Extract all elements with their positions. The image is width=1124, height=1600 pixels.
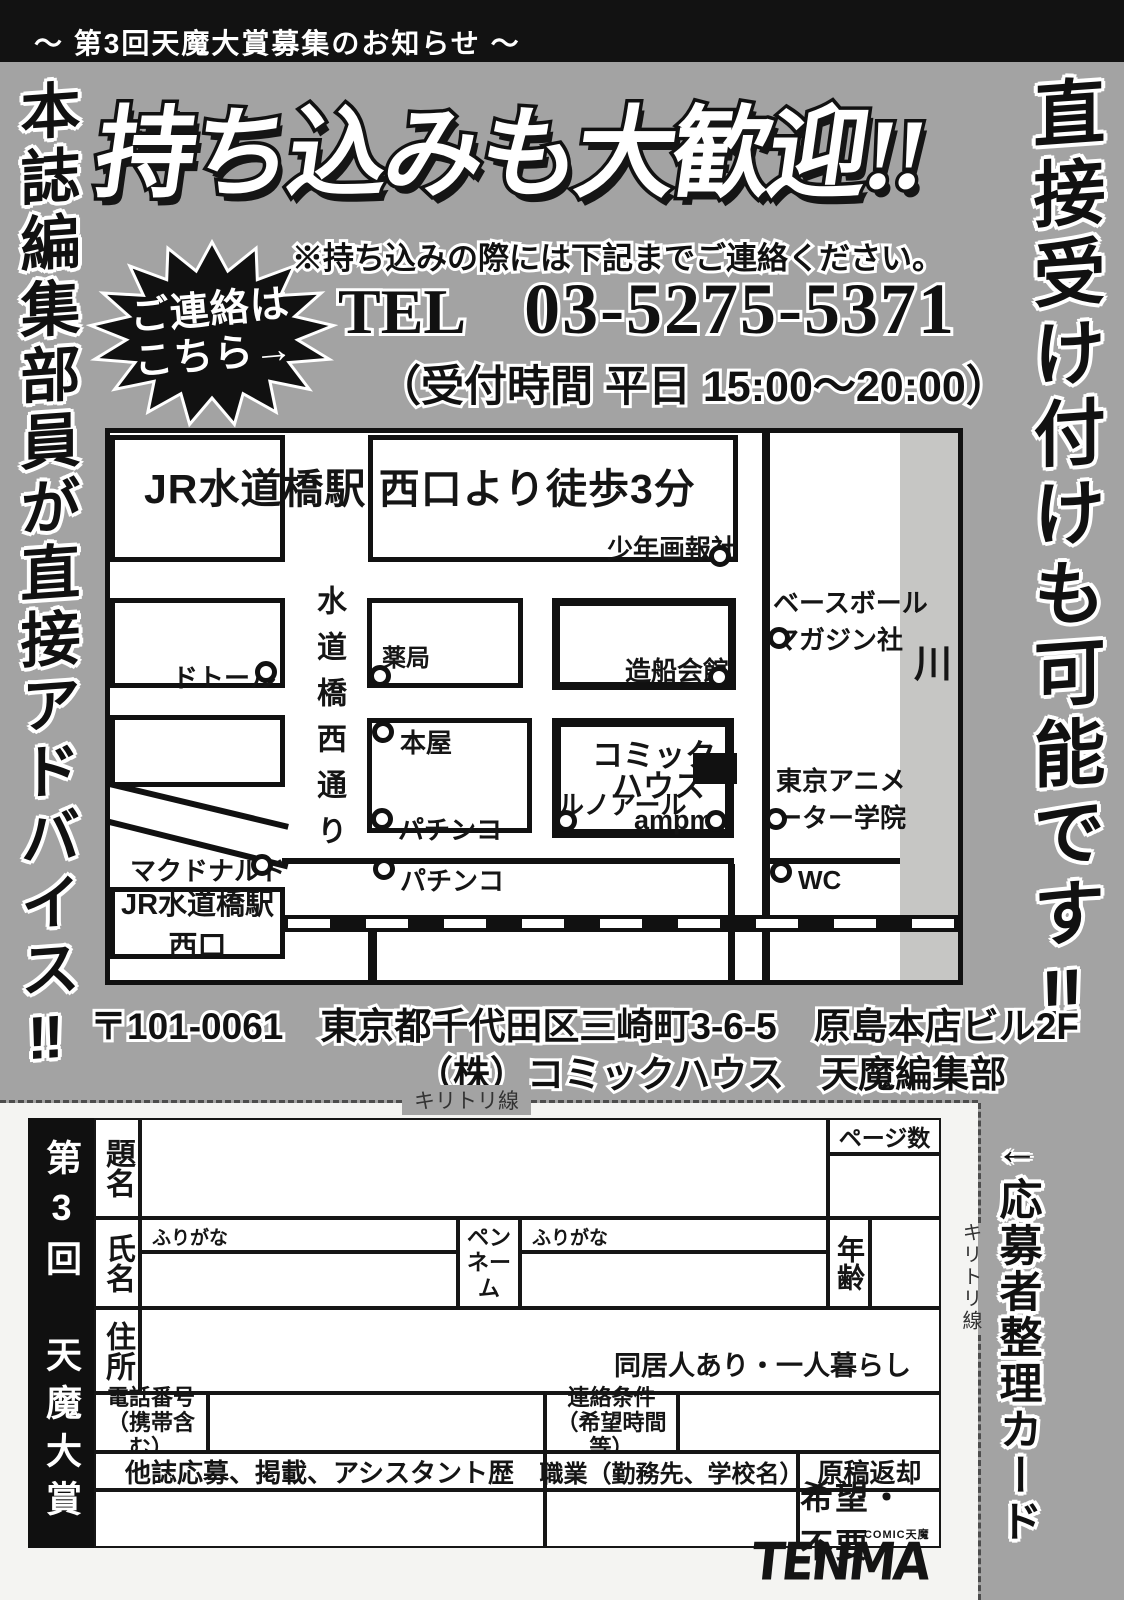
field-input-contact: [678, 1393, 941, 1452]
landmark-yakkyoku: 薬局: [382, 638, 430, 673]
tel-label: TEL: [338, 275, 466, 349]
field-label-address: 住所: [94, 1308, 140, 1393]
map-block-station: JR水道橋駅 西口: [110, 887, 285, 959]
landmark-marker: [255, 661, 277, 683]
field-label-title: 題名: [94, 1118, 140, 1218]
landmark-pachinko2: パチンコ: [400, 861, 504, 898]
railway-track: [282, 915, 958, 932]
landmark-marker: [770, 861, 792, 883]
landmark-marker: [373, 858, 395, 880]
comic-house-marker: [693, 753, 737, 784]
tel-number: 03-5275-5371: [524, 268, 956, 351]
station-label-line2: 西口: [168, 923, 226, 965]
street-line-east: [762, 433, 770, 980]
cut-line-vertical: [978, 1103, 981, 1223]
tenma-logo-text: TENMA: [749, 1532, 931, 1592]
field-input-penname: [520, 1252, 828, 1308]
access-map: 川 JR水道橋駅 西口 JR水道橋駅 西口より徒歩3分 水道橋西通り 少年画報社…: [105, 428, 963, 985]
phone-line: TEL 03-5275-5371: [338, 268, 956, 351]
landmark-marker: [369, 665, 391, 687]
field-label-name: 氏名: [94, 1218, 140, 1308]
field-input-history: [94, 1490, 545, 1548]
left-slogan: 本誌編集部員が直接アドバイス‼: [2, 77, 89, 1083]
field-input-name: [140, 1252, 458, 1308]
field-input-pages: [828, 1154, 941, 1218]
landmark-ampm: ampm: [634, 805, 714, 836]
field-label-pages: ページ数: [828, 1118, 941, 1154]
landmark-honya: 本屋: [400, 723, 452, 760]
street-line: [368, 932, 377, 980]
field-label-phone: 電話番号 （携帯含む）: [94, 1393, 208, 1452]
landmark-marker: [371, 808, 393, 830]
landmark-marker: [765, 808, 787, 830]
street-line-south: [770, 858, 900, 864]
landmark-marker: [372, 721, 394, 743]
application-form: 第3回 天魔大賞 題名 ページ数 氏名 ふりがな ペン ネーム ふりがな 年齢 …: [28, 1118, 941, 1548]
landmark-marker: [768, 627, 790, 649]
landmark-pachinko1: パチンコ: [398, 810, 502, 847]
field-label-age: 年齢: [828, 1218, 870, 1308]
announcement-banner: 〜 第3回天魔大賞募集のお知らせ 〜: [0, 0, 1124, 62]
landmark-marker: [251, 854, 273, 876]
field-label-penname: ペン ネーム: [458, 1218, 520, 1308]
landmark-wc: WC: [798, 865, 841, 896]
field-label-occupation: 職業（勤務先、学校名）: [545, 1452, 798, 1490]
living-status-options: 同居人あり・一人暮らし: [614, 1344, 911, 1383]
landmark-marker: [709, 545, 731, 567]
field-input-phone: [208, 1393, 545, 1452]
map-header: JR水道橋駅 西口より徒歩3分: [144, 455, 696, 515]
landmark-marker: [705, 810, 727, 832]
reception-hours: （受付時間 平日 15:00〜20:00）: [378, 352, 1009, 414]
announcement-banner-text: 〜 第3回天魔大賞募集のお知らせ 〜: [34, 22, 521, 62]
page-title: 持ち込みも大歓迎!!: [88, 72, 1008, 217]
field-input-age: [870, 1218, 941, 1308]
street-name-label: 水道橋西通り: [306, 585, 350, 861]
address-line1: 〒101-0061 東京都千代田区三崎町3-6-5 原島本店ビル2F: [90, 996, 1079, 1050]
applicant-card-label: ←応募者整理カード: [986, 1126, 1048, 1545]
field-label-history: 他誌応募、掲載、アシスタント歴: [94, 1452, 545, 1490]
tenma-logo: COMIC天魔 TENMA: [752, 1534, 928, 1590]
right-slogan: 直接受け付けも可能です‼: [1010, 72, 1115, 1084]
landmark-baseball-magazine: ベースボール マガジン社: [773, 583, 928, 657]
cut-line-horizontal-label: キリトリ線: [402, 1085, 531, 1115]
cut-line-vertical-label: キリトリ線: [956, 1222, 985, 1332]
field-input-title: [140, 1118, 828, 1218]
landmark-marker: [708, 666, 730, 688]
field-furigana-name: ふりがな: [140, 1218, 458, 1252]
field-furigana-penname: ふりがな: [520, 1218, 828, 1252]
field-input-address: 同居人あり・一人暮らし: [140, 1308, 941, 1393]
map-block: [110, 715, 285, 787]
diagonal-street: [109, 781, 289, 830]
cut-line-vertical: [978, 1335, 981, 1600]
landmark-anime-academy: 東京アニメ ーター学院: [776, 761, 906, 835]
form-banner: 第3回 天魔大賞: [28, 1118, 94, 1548]
river-strip: [900, 433, 958, 980]
field-label-contact: 連絡条件 （希望時間等）: [545, 1393, 678, 1452]
landmark-marker: [555, 810, 577, 832]
